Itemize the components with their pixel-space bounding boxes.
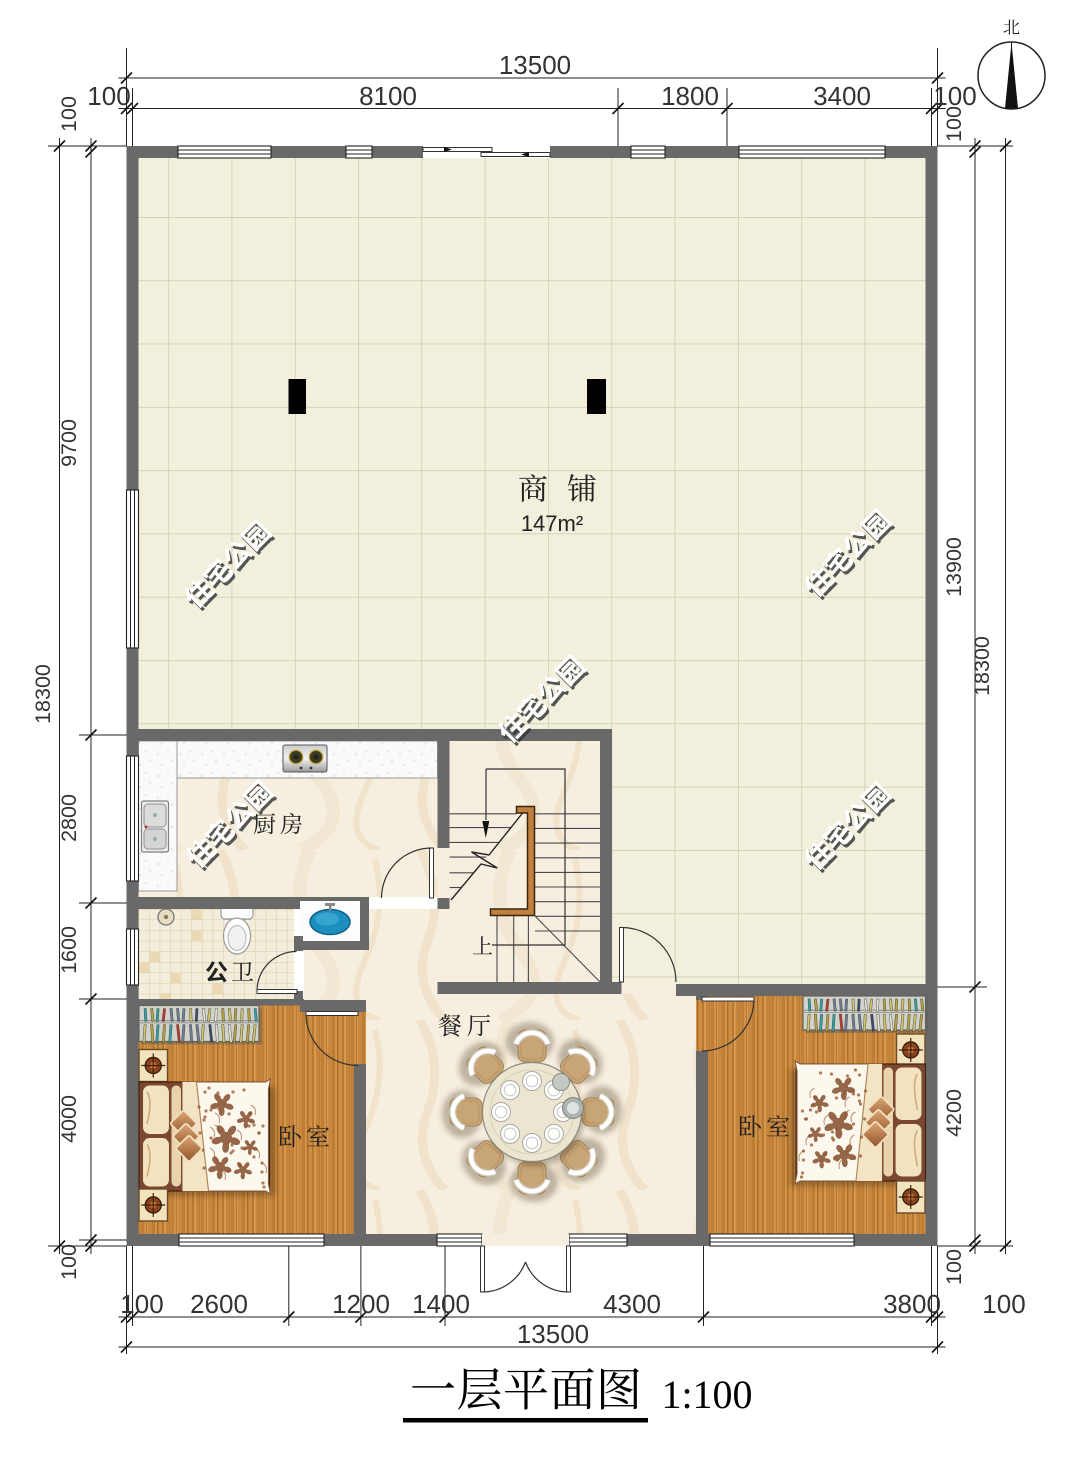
svg-text:2600: 2600 — [190, 1289, 248, 1319]
svg-text:100: 100 — [942, 106, 966, 142]
svg-text:100: 100 — [57, 96, 81, 132]
svg-text:1200: 1200 — [332, 1289, 390, 1319]
svg-text:18300: 18300 — [31, 664, 55, 724]
svg-text:3400: 3400 — [813, 81, 871, 111]
svg-text:100: 100 — [57, 1244, 81, 1280]
svg-text:100: 100 — [942, 1249, 966, 1285]
svg-text:2800: 2800 — [57, 794, 81, 842]
svg-text:1600: 1600 — [57, 926, 81, 974]
svg-text:4200: 4200 — [942, 1089, 966, 1137]
svg-text:1800: 1800 — [661, 81, 719, 111]
svg-text:13500: 13500 — [517, 1319, 589, 1349]
svg-text:100: 100 — [87, 81, 130, 111]
svg-text:100: 100 — [982, 1289, 1025, 1319]
svg-text:100: 100 — [120, 1289, 163, 1319]
svg-text:4300: 4300 — [603, 1289, 661, 1319]
svg-text:13500: 13500 — [499, 50, 571, 80]
svg-text:9700: 9700 — [57, 419, 81, 467]
svg-text:8100: 8100 — [359, 81, 417, 111]
svg-text:13900: 13900 — [942, 537, 966, 597]
svg-text:18300: 18300 — [970, 636, 994, 696]
svg-text:3800: 3800 — [883, 1289, 941, 1319]
svg-text:1400: 1400 — [412, 1289, 470, 1319]
svg-text:4000: 4000 — [57, 1095, 81, 1143]
svg-text:1:100: 1:100 — [661, 1372, 752, 1417]
svg-text:147m²: 147m² — [521, 511, 583, 536]
